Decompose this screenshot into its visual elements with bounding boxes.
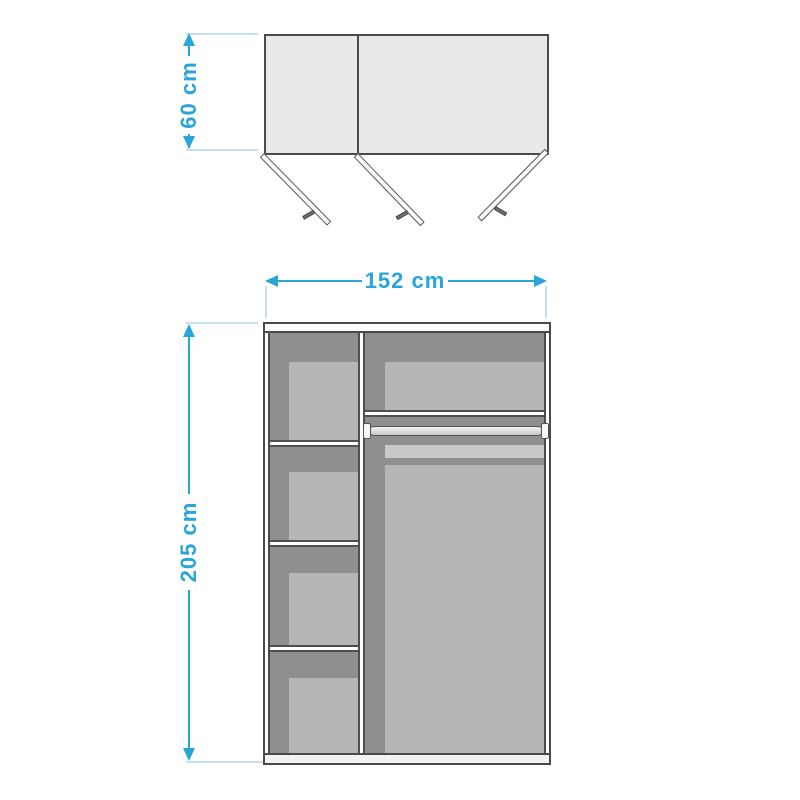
arrow-up-icon [183, 33, 195, 46]
compartment-back-panel [289, 678, 358, 753]
right-side-panel [544, 333, 549, 753]
top-panel [265, 324, 549, 333]
hanging-compartment [365, 437, 544, 753]
center-divider-panel [358, 333, 365, 753]
top-view-divider [357, 36, 359, 153]
open-door-middle [354, 153, 425, 226]
arrow-down-icon [183, 136, 195, 149]
left-compartment-1 [270, 333, 358, 440]
right-shelf [365, 410, 544, 417]
extension-line-width-right [545, 286, 547, 318]
left-compartment-2 [270, 447, 358, 540]
back-panel-light-band [385, 445, 544, 458]
left-shelf-3 [270, 645, 358, 652]
left-shelf-1 [270, 440, 358, 447]
left-compartment-3 [270, 547, 358, 645]
extension-line-width-left [265, 286, 267, 318]
extension-line-height-top [186, 322, 258, 324]
width-dimension-label: 152 cm [362, 269, 448, 293]
depth-dimension-label: 60 cm [177, 56, 201, 134]
plinth-panel [265, 753, 549, 763]
extension-line-depth-bottom [186, 149, 258, 151]
wardrobe-dimension-diagram: 60 cm 152 cm 205 cm [0, 0, 800, 800]
right-top-compartment [365, 333, 544, 410]
door-handle [302, 210, 315, 220]
left-compartment-4 [270, 652, 358, 753]
height-dimension-label: 205 cm [177, 494, 201, 590]
compartment-back-panel [289, 362, 358, 440]
arrow-up-icon [183, 324, 195, 337]
hanging-rail-left-cap [363, 423, 371, 439]
open-door-left [260, 153, 332, 226]
left-shelf-2 [270, 540, 358, 547]
door-handle [494, 206, 507, 216]
wardrobe-front-view: 152 cm 205 cm [0, 250, 800, 800]
top-view-body [264, 34, 549, 155]
compartment-back-panel [289, 573, 358, 645]
extension-line-depth-top [186, 33, 258, 35]
cabinet-interior [270, 333, 544, 753]
compartment-back-panel [385, 465, 544, 753]
arrow-right-icon [534, 275, 547, 287]
wardrobe-top-view: 60 cm [0, 0, 800, 250]
open-door-right [477, 149, 549, 222]
arrow-left-icon [265, 275, 278, 287]
cabinet-front [263, 322, 551, 765]
door-handle [396, 210, 409, 220]
hanging-rail [369, 426, 543, 436]
compartment-back-panel [289, 472, 358, 540]
compartment-back-panel [385, 362, 544, 410]
arrow-down-icon [183, 748, 195, 761]
hanging-rail-right-cap [541, 423, 549, 439]
